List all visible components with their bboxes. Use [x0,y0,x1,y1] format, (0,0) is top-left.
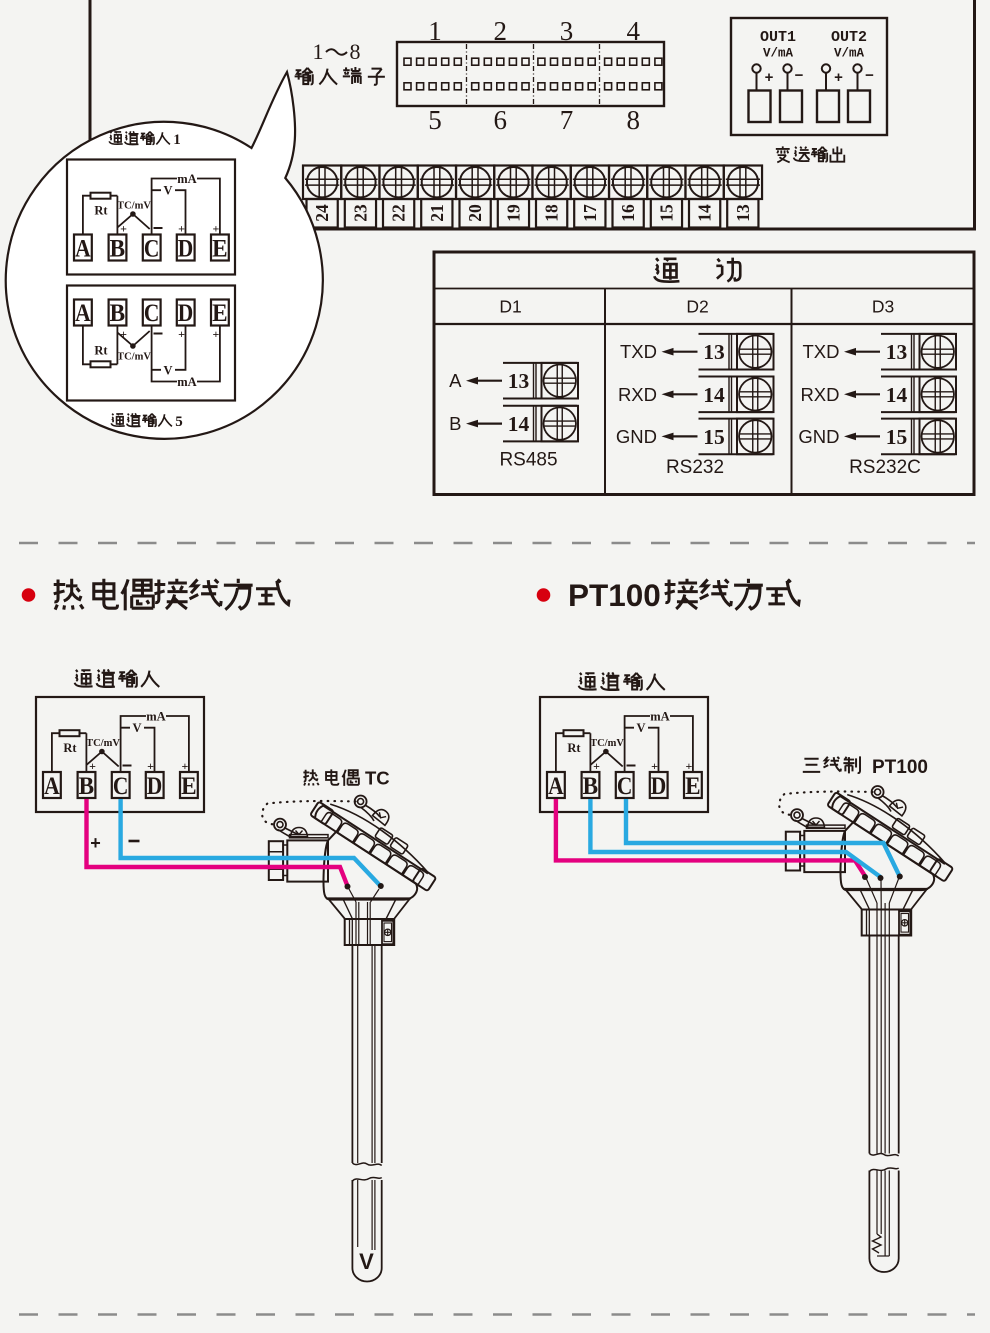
svg-text:V/mA: V/mA [763,47,794,61]
svg-text:D: D [178,236,194,263]
svg-text:E: E [685,773,701,800]
svg-text:1: 1 [173,132,181,148]
svg-text:19: 19 [503,204,523,222]
svg-text:mA: mA [177,172,196,186]
svg-text:TC/mV: TC/mV [117,201,151,212]
svg-text:B: B [110,236,126,263]
svg-text:Rt: Rt [567,741,581,755]
svg-text:17: 17 [580,204,600,222]
svg-text:+: + [90,833,101,853]
svg-text:14: 14 [695,204,715,222]
svg-text:5: 5 [428,105,442,135]
svg-text:−: − [865,67,874,84]
svg-text:A: A [75,300,91,327]
svg-text:+: + [89,759,96,773]
svg-text:V: V [132,721,141,735]
svg-text:8: 8 [626,105,640,135]
svg-text:+: + [593,759,600,773]
svg-text:D2: D2 [686,297,708,317]
svg-text:OUT2: OUT2 [831,29,867,46]
svg-text:Rt: Rt [94,344,108,358]
svg-text:21: 21 [427,204,447,222]
svg-text:A: A [449,370,462,391]
svg-text:1: 1 [428,16,442,46]
svg-text:TC/mV: TC/mV [117,352,151,363]
svg-text:A: A [548,773,564,800]
svg-text:RS232: RS232 [666,457,724,478]
svg-text:14: 14 [703,383,725,407]
svg-text:15: 15 [656,204,676,222]
svg-text:14: 14 [508,412,530,436]
svg-text:RXD: RXD [800,384,839,405]
svg-text:Rt: Rt [94,204,108,218]
svg-text:18: 18 [542,204,562,222]
svg-text:+: + [765,69,774,86]
svg-text:+: + [651,759,658,773]
svg-text:mA: mA [177,375,196,389]
svg-text:8: 8 [350,39,361,64]
svg-text:3: 3 [560,16,574,46]
svg-text:mA: mA [146,710,165,724]
svg-text:A: A [75,236,91,263]
svg-text:V: V [163,363,172,377]
svg-text:PT100: PT100 [872,757,928,778]
svg-text:GND: GND [616,426,657,447]
svg-text:D: D [178,300,194,327]
svg-text:D: D [651,773,667,800]
svg-text:V/mA: V/mA [834,47,865,61]
svg-text:+: + [181,759,188,773]
svg-text:B: B [110,300,126,327]
svg-text:+: + [178,222,185,236]
svg-text:13: 13 [733,204,753,222]
svg-text:GND: GND [798,426,839,447]
svg-text:D: D [147,773,163,800]
svg-text:15: 15 [703,425,725,449]
svg-text:13: 13 [886,340,908,364]
svg-text:7: 7 [560,105,574,135]
svg-text:OUT1: OUT1 [760,29,796,46]
svg-text:+: + [685,759,692,773]
svg-text:E: E [212,236,228,263]
svg-text:+: + [147,759,154,773]
svg-text:RS232C: RS232C [849,457,921,478]
svg-text:V: V [636,721,645,735]
svg-text:V: V [163,184,172,198]
svg-text:PT100: PT100 [568,577,661,613]
svg-text:4: 4 [626,16,640,46]
svg-text:15: 15 [886,425,908,449]
svg-text:TC: TC [365,768,390,789]
svg-text:Rt: Rt [63,741,77,755]
svg-text:C: C [617,773,633,800]
svg-text:C: C [113,773,129,800]
svg-text:E: E [212,300,228,327]
svg-text:6: 6 [494,105,508,135]
svg-text:B: B [583,773,599,800]
svg-text:+: + [178,327,185,341]
svg-text:23: 23 [350,204,370,222]
svg-text:22: 22 [389,204,409,222]
svg-text:+: + [120,222,127,236]
svg-text:TXD: TXD [620,341,657,362]
svg-text:5: 5 [175,414,183,430]
svg-text:RXD: RXD [618,384,657,405]
svg-text:2: 2 [494,16,508,46]
svg-text:−: − [795,67,804,84]
svg-text:V: V [359,1249,374,1274]
svg-text:B: B [79,773,95,800]
svg-text:20: 20 [465,204,485,222]
svg-text:14: 14 [886,383,908,407]
svg-text:A: A [44,773,60,800]
svg-text:1: 1 [313,39,324,64]
svg-text:13: 13 [703,340,725,364]
svg-text:TC/mV: TC/mV [86,738,120,749]
svg-text:mA: mA [650,710,669,724]
svg-text:24: 24 [312,204,332,222]
svg-text:+: + [212,327,219,341]
svg-text:D1: D1 [499,297,521,317]
svg-text:16: 16 [618,204,638,222]
svg-text:E: E [181,773,197,800]
svg-text:+: + [120,327,127,341]
svg-text:13: 13 [508,369,530,393]
svg-text:D3: D3 [872,297,894,317]
svg-text:TXD: TXD [803,341,840,362]
svg-text:+: + [834,69,843,86]
svg-text:C: C [144,236,160,263]
svg-text:C: C [144,300,160,327]
svg-text:B: B [449,413,461,434]
svg-text:+: + [212,222,219,236]
svg-text:TC/mV: TC/mV [590,738,624,749]
svg-text:RS485: RS485 [499,450,557,471]
